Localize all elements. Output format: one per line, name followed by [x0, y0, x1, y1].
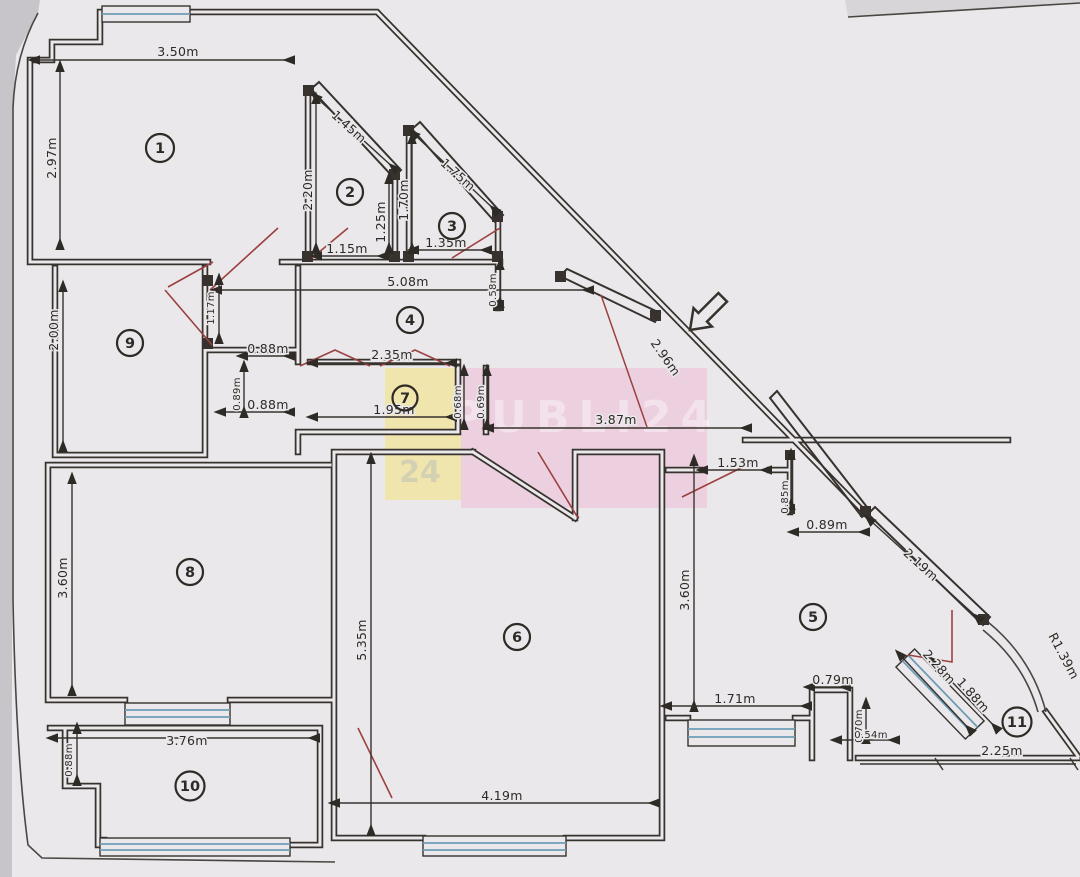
- dim-label: 1.53m: [717, 455, 759, 470]
- dim-label: 0.88m: [247, 397, 289, 412]
- watermark: PUBLI24 24: [385, 368, 720, 508]
- dim-label: 0.79m: [812, 672, 854, 687]
- window-top: [102, 6, 190, 22]
- dim-label: 2.35m: [371, 347, 413, 362]
- dim-label: 0.58m: [488, 273, 499, 307]
- dim-label: 4.19m: [481, 788, 523, 803]
- dim-label: 2.97m: [44, 137, 59, 179]
- svg-text:7: 7: [400, 391, 410, 407]
- dim-label: 1.15m: [326, 241, 368, 256]
- dim-label: 0.88m: [247, 341, 289, 356]
- svg-text:11: 11: [1007, 715, 1027, 731]
- dim-label: 3.60m: [677, 569, 692, 611]
- floor-plan: PUBLI24 24: [0, 0, 1080, 877]
- window-room5: [688, 720, 795, 746]
- window-room6: [423, 836, 566, 856]
- dim-label: 0.89m: [232, 377, 243, 411]
- dim-label: 3.50m: [157, 44, 199, 59]
- dim-label: 1.71m: [714, 691, 756, 706]
- svg-text:1: 1: [155, 141, 165, 157]
- svg-text:8: 8: [185, 565, 195, 581]
- dim-label: 1.25m: [373, 201, 388, 243]
- dim-label: 1.17m: [206, 291, 217, 325]
- dim-label: 0.68m: [453, 385, 464, 419]
- dim-label: 3.60m: [55, 557, 70, 599]
- dim-label: 2.00m: [46, 309, 61, 351]
- svg-text:10: 10: [180, 779, 200, 795]
- watermark-accent: 24: [399, 455, 441, 490]
- dim-label: 3.76m: [166, 733, 208, 748]
- dim-label: 5.08m: [387, 274, 429, 289]
- dim-label: 0.69m: [476, 385, 487, 419]
- window-room10: [100, 838, 290, 856]
- dim-label: 0.85m: [780, 480, 791, 514]
- dim-label: 0.89m: [806, 517, 848, 532]
- window-room8: [125, 703, 230, 725]
- dim-label: 0.88m: [64, 743, 75, 777]
- dim-label: 2.20m: [300, 169, 315, 211]
- svg-text:2: 2: [345, 185, 355, 201]
- svg-text:6: 6: [512, 630, 522, 646]
- dim-label: 3.87m: [595, 412, 637, 427]
- dim-label: 1.70m: [396, 179, 411, 221]
- svg-text:4: 4: [405, 313, 415, 329]
- floor-plan-scan: PUBLI24 24: [0, 0, 1080, 877]
- dim-label: 5.35m: [354, 619, 369, 661]
- svg-text:9: 9: [125, 336, 135, 352]
- dim-label: 2.25m: [981, 743, 1023, 758]
- svg-text:5: 5: [808, 610, 818, 626]
- svg-text:3: 3: [447, 219, 457, 235]
- dim-label: 0.54m: [854, 730, 888, 741]
- watermark-text: PUBLI24: [450, 392, 720, 443]
